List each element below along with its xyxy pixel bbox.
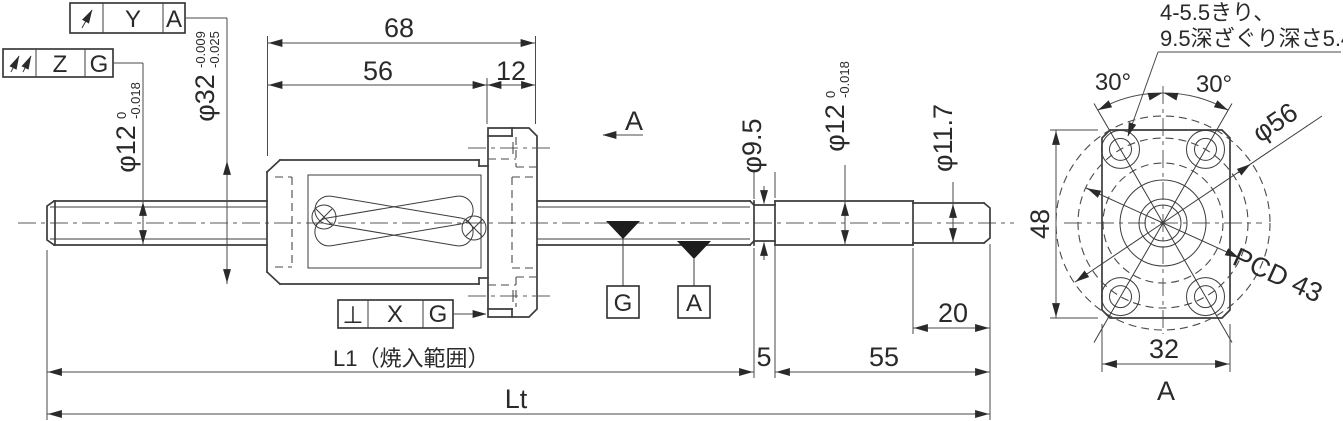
dim-phi12-right: φ12 0 -0.018 [820,61,852,245]
datum-target-a-triangle [677,241,711,259]
dim-phi32-label: φ32 [190,74,220,122]
end-view: φ56 PCD 43 30° 30° 4-5.5きり、 9.5深ざぐり深さ5.4 [1025,0,1343,406]
dim-phi56-label: φ56 [1247,97,1303,148]
dim-55-label: 55 [869,342,899,372]
gdt-frame-perpendicularity: ⊥ X G [338,300,486,329]
datum-target-a-label: A [686,290,702,317]
dim-l1-label: L1（焼入範囲） [333,346,489,371]
perpendicularity-icon: ⊥ [343,302,364,329]
runout-tolerance-label: Y [125,6,141,33]
dim-68-label: 68 [384,13,414,43]
dim-12: 12 [488,56,535,86]
dim-55: 55 [775,244,990,420]
dim-30-right-label: 30° [1196,71,1232,98]
counterbore-note-line1: 4-5.5きり、 [1160,0,1275,25]
datum-target-g-triangle [606,221,640,239]
dim-phi32: φ32 -0.009 -0.025 [190,18,227,284]
section-arrow-label: A [625,106,643,136]
dim-phi117: φ11.7 [928,104,958,243]
dim-phi32-tol-lower: -0.025 [207,31,222,68]
dim-l1: L1（焼入範囲） [47,248,754,420]
dim-pcd43-label: PCD 43 [1229,242,1327,309]
dim-20: 20 [913,248,990,334]
dim-phi95-label: φ9.5 [737,118,767,173]
dim-phi117-label: φ11.7 [928,104,958,172]
dim-lt-label: Lt [505,384,528,414]
view-a-label: A [1157,376,1175,406]
dim-phi12-left-label: φ12 [111,125,141,173]
dim-phi12-right-tol-lower: -0.018 [837,61,852,98]
perpendicularity-datum-label: G [429,301,448,328]
ballscrew-drawing-canvas: Y A Z G ⊥ X G [0,0,1343,421]
dim-phi32-tol-upper: -0.009 [193,31,208,68]
dim-48-label: 48 [1025,209,1055,239]
section-arrow: A [603,106,643,136]
dim-56-label: 56 [363,56,393,86]
dim-phi56: φ56 [1075,97,1322,282]
counterbore-note-line2: 9.5深ざぐり深さ5.4 [1160,26,1343,51]
total-runout-tolerance-label: Z [53,51,68,78]
dim-lt: Lt [47,384,990,414]
dim-48: 48 [1025,130,1098,318]
datum-target-g-label: G [614,290,633,317]
datum-target-g: G [606,221,640,318]
tube-end-right [462,216,486,240]
datum-target-a: A [677,241,711,318]
dim-phi12-left-tol-lower: -0.018 [128,82,143,119]
dim-32-label: 32 [1149,334,1179,364]
gdt-frame-total-runout: Z G [3,49,143,78]
dim-phi12-left-tol-upper: 0 [114,112,129,119]
ball-return-tubes [312,194,486,248]
dim-20-label: 20 [938,298,968,328]
total-runout-datum-label: G [90,51,109,78]
dim-pcd43: PCD 43 [1086,188,1327,308]
perpendicularity-tolerance-label: X [387,301,403,328]
gdt-frame-runout: Y A [70,3,227,33]
dim-phi12-right-label: φ12 [820,104,850,152]
dim-phi12-left: φ12 0 -0.018 [111,63,143,245]
nut-cutaway-window [308,175,481,268]
nut-body [267,160,488,284]
dim-5-label: 5 [756,342,771,372]
dim-32: 32 [1102,324,1230,372]
dim-5: 5 [756,342,771,372]
side-view: Y A Z G ⊥ X G [3,3,1014,420]
dim-12-label: 12 [496,56,526,86]
dim-30-left-label: 30° [1095,69,1131,96]
dim-phi12-right-tol-upper: 0 [823,91,838,98]
runout-datum-label: A [166,6,182,33]
engineering-drawing-page: Y A Z G ⊥ X G [0,0,1343,421]
